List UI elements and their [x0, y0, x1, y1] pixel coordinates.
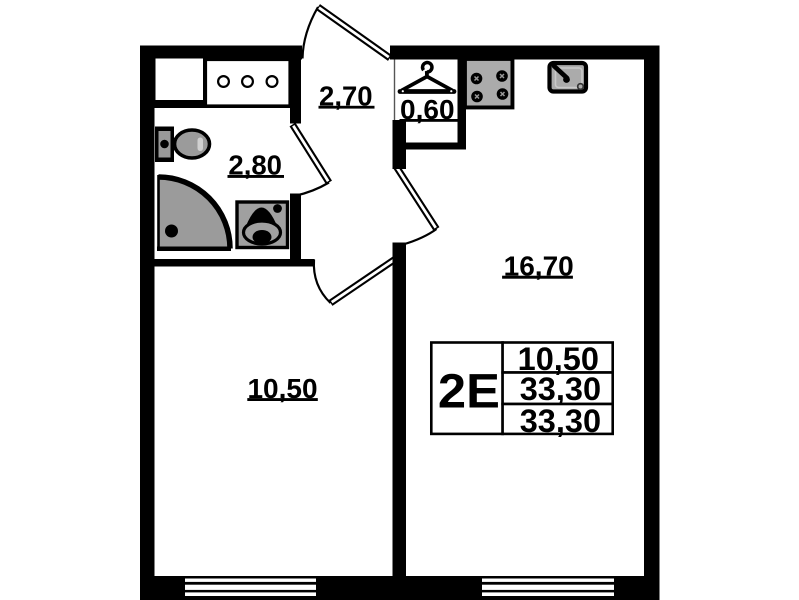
svg-text:33,30: 33,30 [520, 371, 601, 407]
svg-text:33,30: 33,30 [520, 403, 601, 439]
svg-text:2Е: 2Е [438, 366, 500, 419]
